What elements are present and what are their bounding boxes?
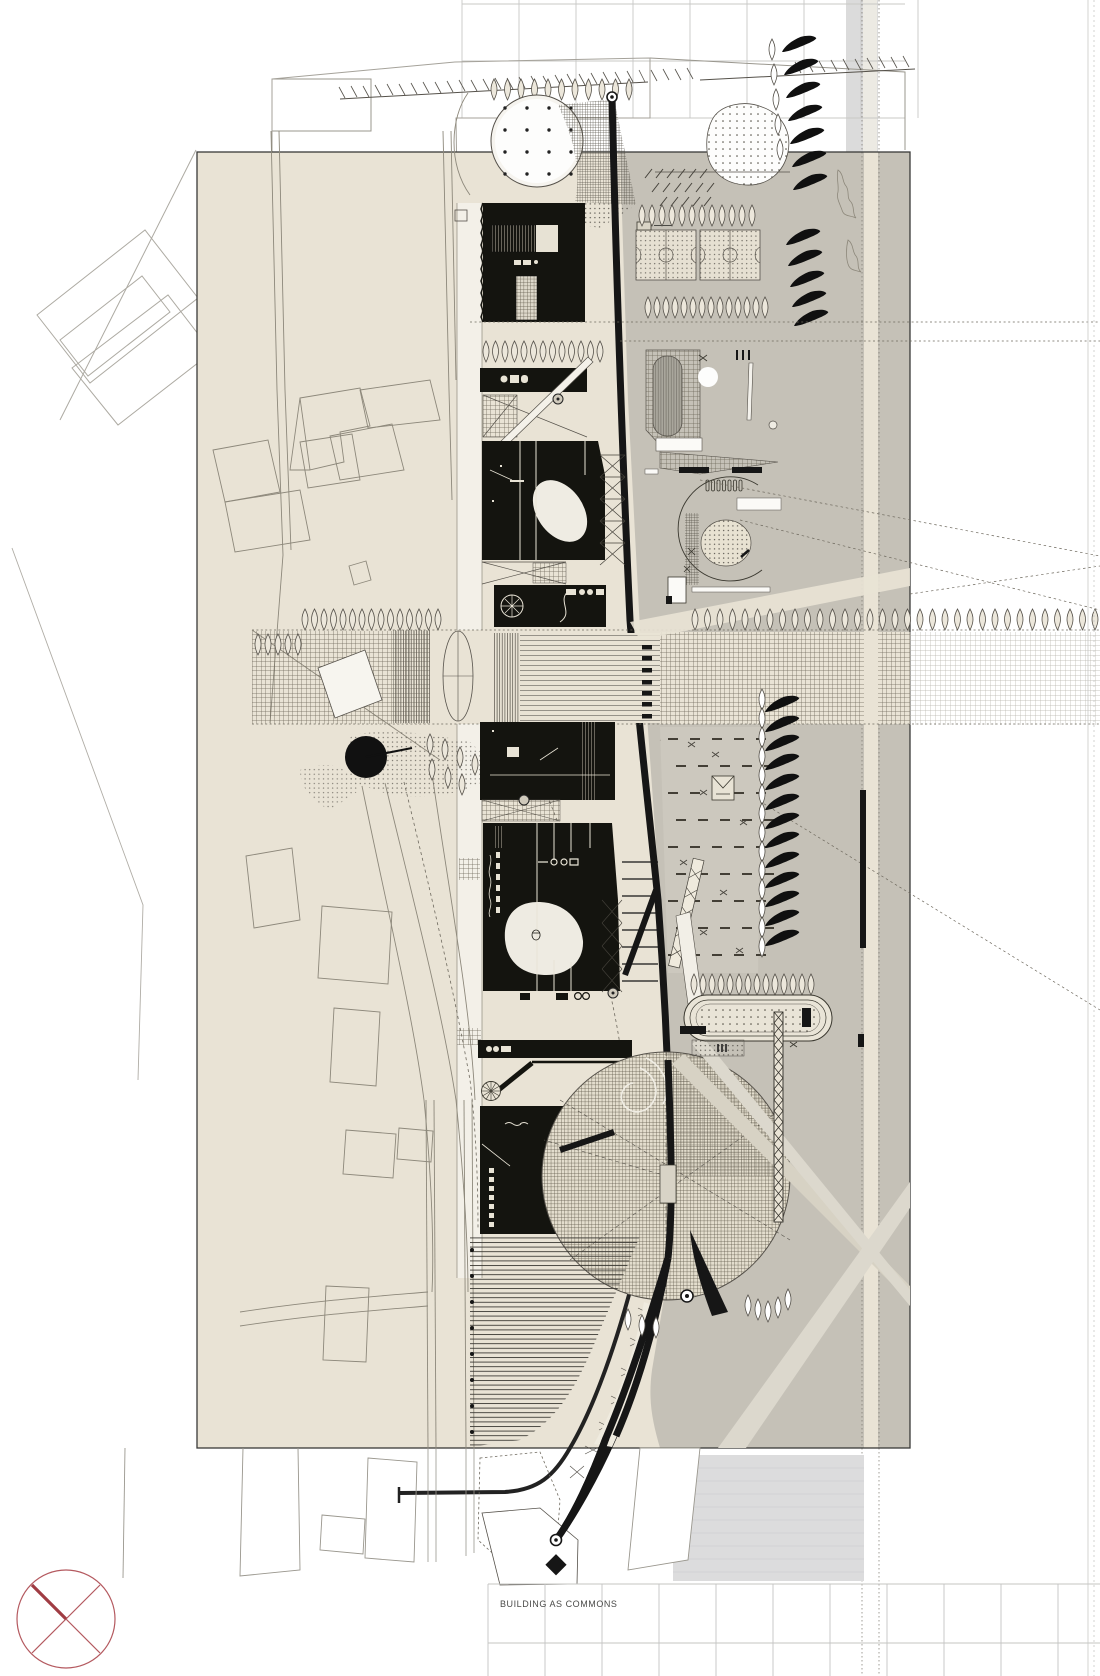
svg-text:BUILDING AS COMMONS: BUILDING AS COMMONS: [500, 1599, 617, 1609]
